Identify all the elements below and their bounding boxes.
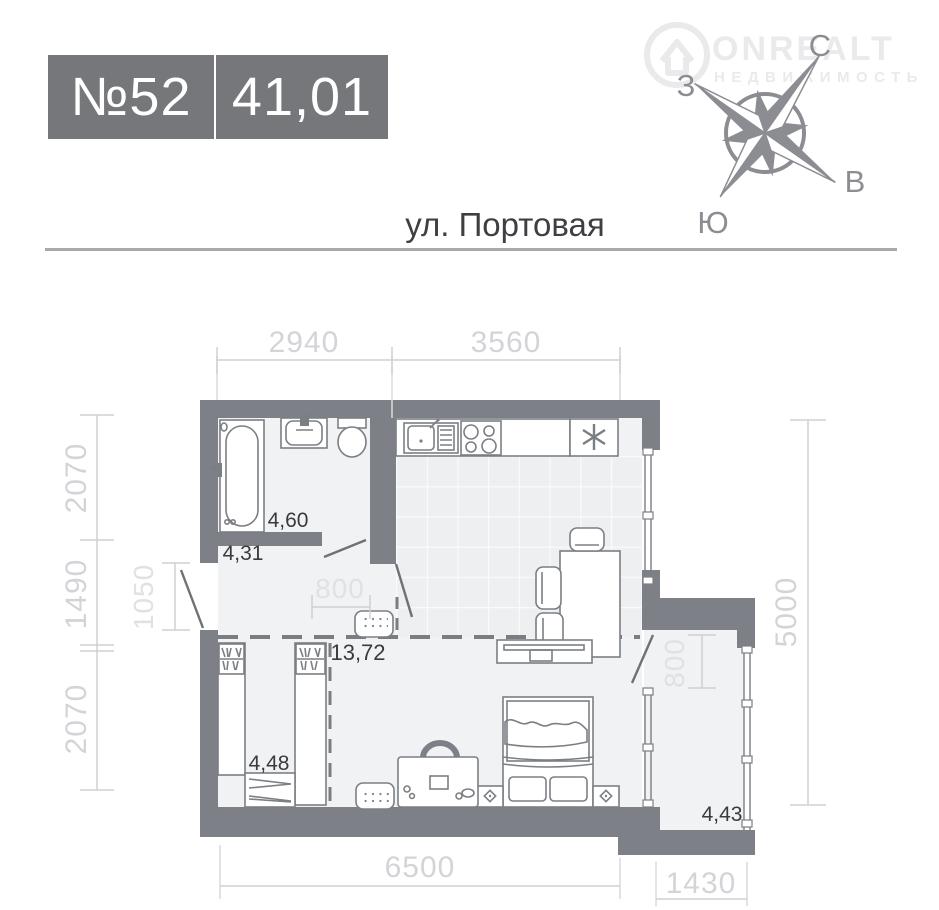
rug-icon-2: [356, 783, 394, 809]
balcony-window: [742, 646, 752, 830]
watermark-tagline: НЕДВИЖИМОСТЬ: [714, 69, 924, 86]
shelf-icon: [245, 773, 295, 807]
dimension-entry: 1050: [128, 563, 190, 630]
wardrobe-area-label: 4,48: [249, 752, 290, 775]
bathroom-sink-icon: [281, 414, 327, 448]
floorplan-drawing: ONREALT НЕДВИЖИМОСТЬ: [0, 0, 939, 910]
dim-right-height: 5000: [770, 577, 803, 648]
dim-top-left: 2940: [269, 326, 340, 359]
dim-bottom-width: 6500: [385, 851, 456, 884]
dim-entry-opening: 1050: [128, 564, 159, 630]
bathtub-icon: [212, 420, 264, 532]
dim-balcony-door: 800: [659, 638, 690, 688]
dim-left-top: 2070: [60, 443, 93, 514]
dimension-bottom: 6500: [220, 845, 620, 899]
dimension-right: 5000: [770, 420, 826, 805]
bathroom-area-label: 4,60: [268, 509, 309, 532]
dimension-left: 2070 1490 2070: [60, 415, 114, 790]
toilet-icon: [338, 418, 366, 457]
dim-top-right: 3560: [471, 326, 542, 359]
kitchen-window: [643, 448, 653, 584]
floorplan-page: №52 41,01 ул. Портовая ONREALT НЕДВИЖИМО…: [0, 0, 939, 910]
entry-door-swing: [181, 570, 203, 628]
compass-east-label: В: [845, 164, 866, 199]
bed-icon: [503, 697, 593, 807]
dim-hall-opening: 800: [315, 573, 365, 604]
fridge-icon: [570, 419, 618, 456]
kitchen-sink-icon: [404, 418, 458, 453]
rug-icon: [355, 611, 393, 637]
dim-balcony-width: 1430: [666, 867, 737, 900]
dim-left-bottom: 2070: [60, 684, 93, 755]
living-area-label: 13,72: [330, 640, 385, 665]
balcony-area-label: 4,43: [702, 803, 743, 826]
hallway-area-label: 4,31: [223, 542, 264, 565]
compass-south-label: Ю: [697, 205, 728, 240]
compass-north-label: С: [809, 28, 831, 63]
stove-icon: [461, 421, 501, 455]
watermark-brand: ONREALT: [712, 30, 895, 68]
dimension-balcony-width: 1430: [656, 862, 747, 906]
compass-west-label: З: [677, 68, 696, 103]
dim-left-middle: 1490: [60, 559, 93, 630]
tv-stand-icon: [497, 640, 592, 663]
